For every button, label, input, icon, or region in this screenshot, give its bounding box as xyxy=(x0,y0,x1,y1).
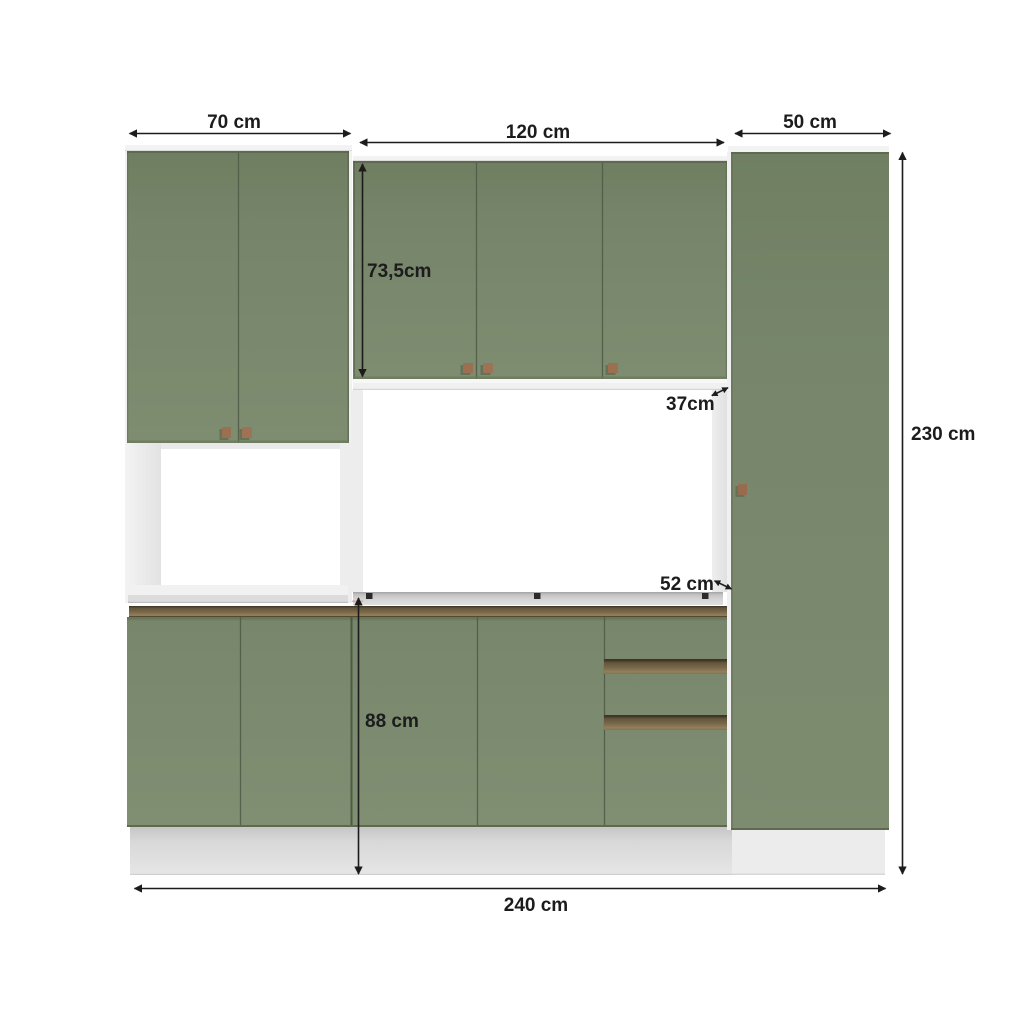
svg-text:52 cm: 52 cm xyxy=(660,574,714,595)
svg-text:50 cm: 50 cm xyxy=(783,112,837,133)
svg-text:73,5cm: 73,5cm xyxy=(367,261,431,282)
svg-text:230 cm: 230 cm xyxy=(911,424,975,445)
svg-text:88 cm: 88 cm xyxy=(365,711,419,732)
svg-text:70 cm: 70 cm xyxy=(207,112,261,133)
svg-text:37cm: 37cm xyxy=(666,394,715,415)
svg-text:240 cm: 240 cm xyxy=(504,895,568,916)
svg-text:120 cm: 120 cm xyxy=(506,122,570,143)
